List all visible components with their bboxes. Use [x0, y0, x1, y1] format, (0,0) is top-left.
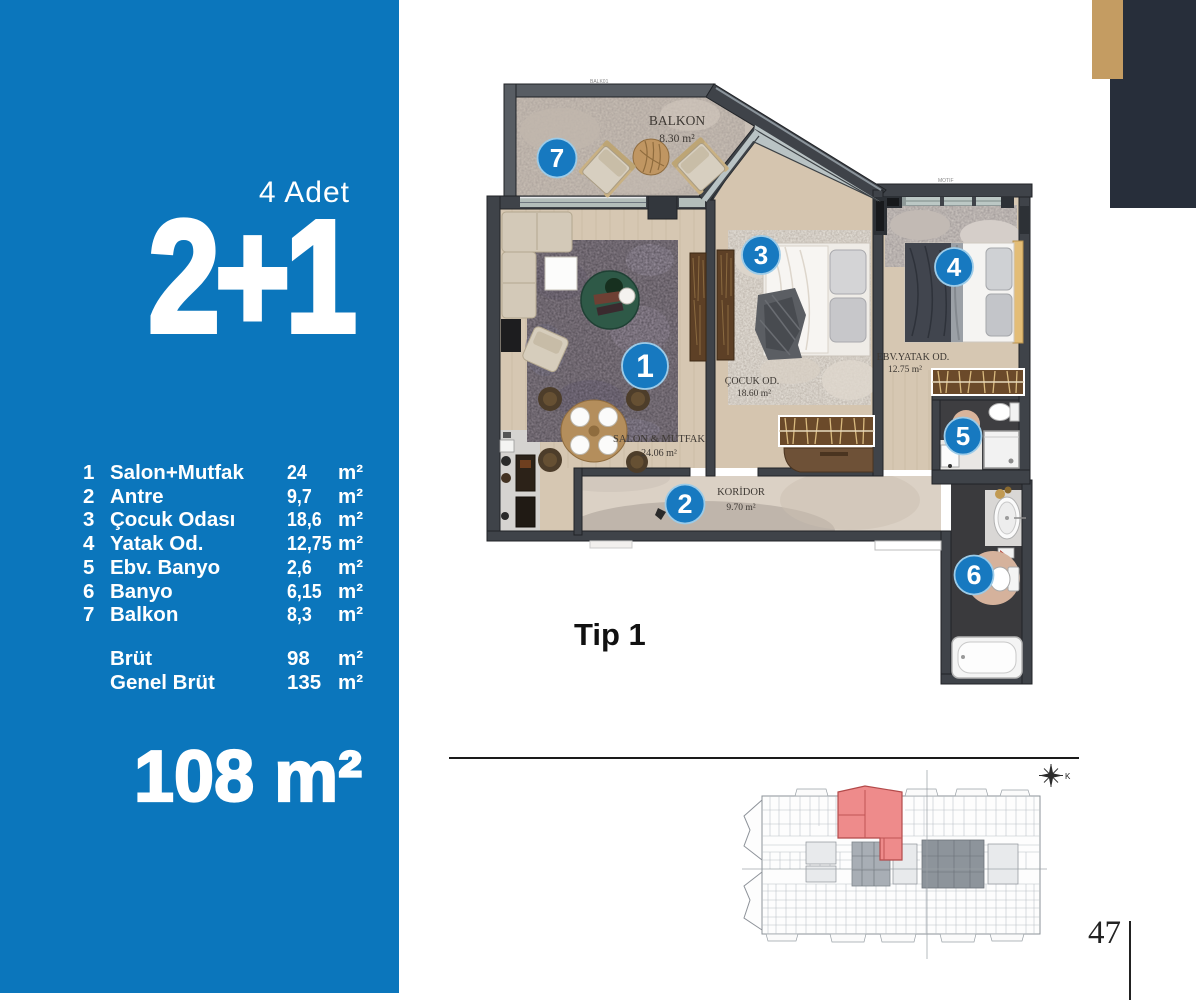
svg-text:12.75 m²: 12.75 m² [888, 365, 922, 375]
svg-text:1: 1 [636, 348, 654, 384]
svg-text:MOTIF: MOTIF [938, 178, 954, 184]
svg-text:9.70 m²: 9.70 m² [726, 503, 755, 513]
svg-text:ÇOCUK OD.: ÇOCUK OD. [725, 376, 779, 387]
svg-text:SALON & MUTFAK: SALON & MUTFAK [613, 434, 705, 445]
svg-text:BALK01: BALK01 [590, 79, 609, 85]
svg-text:2: 2 [677, 489, 692, 519]
svg-text:18.60 m²: 18.60 m² [737, 389, 771, 399]
svg-text:EBV.YATAK OD.: EBV.YATAK OD. [877, 352, 950, 363]
svg-text:7: 7 [550, 143, 564, 173]
svg-text:24.06 m²: 24.06 m² [641, 448, 677, 459]
svg-text:BALKON: BALKON [649, 113, 705, 128]
svg-text:6: 6 [966, 560, 981, 590]
svg-text:8.30 m²: 8.30 m² [659, 133, 695, 145]
svg-text:5: 5 [956, 421, 970, 451]
svg-text:K: K [1065, 772, 1071, 781]
svg-text:4: 4 [947, 252, 962, 282]
svg-text:3: 3 [754, 240, 768, 270]
svg-text:KORİDOR: KORİDOR [717, 486, 765, 498]
